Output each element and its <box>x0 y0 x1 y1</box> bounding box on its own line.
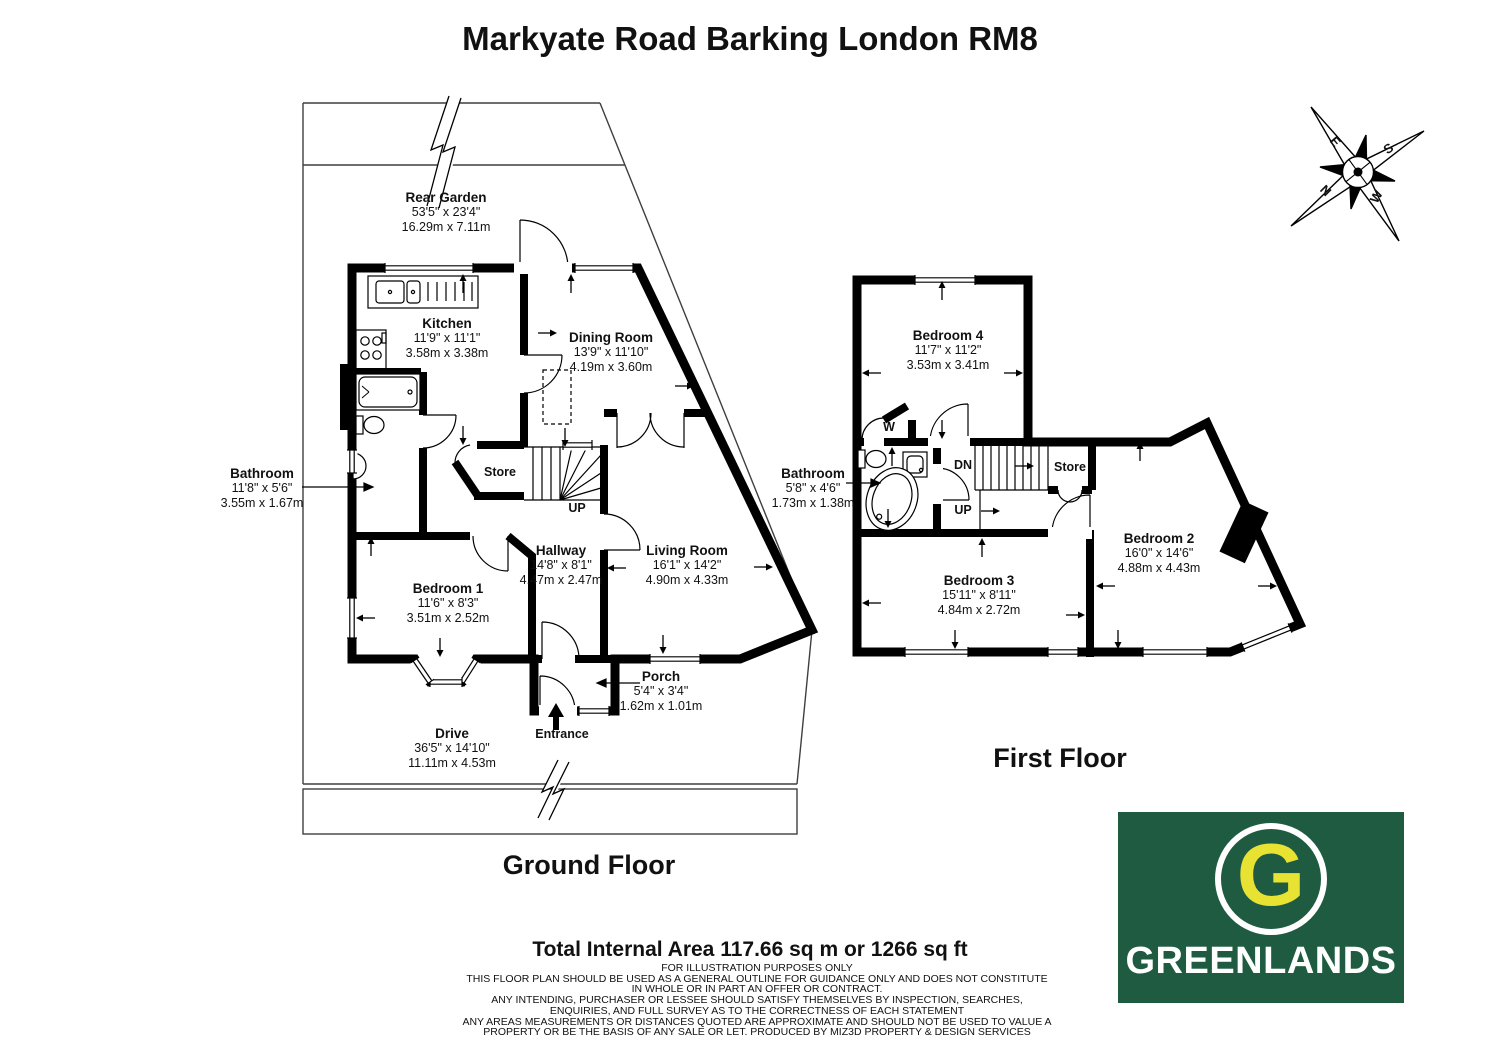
room-label-first-bathroom: Bathroom 5'8" x 4'6" 1.73m x 1.38m <box>772 466 855 511</box>
room-label-dining-room: Dining Room 13'9" x 11'10" 4.19m x 3.60m <box>569 330 653 375</box>
entrance-label: Entrance <box>535 727 589 741</box>
ground-store-label: Store <box>484 465 516 479</box>
room-label-kitchen: Kitchen 11'9" x 11'1" 3.58m x 3.38m <box>406 316 489 361</box>
room-label-living-room: Living Room 16'1" x 14'2" 4.90m x 4.33m <box>646 543 729 588</box>
logo-letter: G <box>1237 831 1305 919</box>
first-store-label: Store <box>1054 460 1086 474</box>
boundary-break-bottom <box>538 760 569 820</box>
floorplan-page: Markyate Road Barking London RM8 Rear Ga… <box>0 0 1500 1060</box>
ground-floor-plan <box>340 220 812 711</box>
greenlands-logo: G GREENLANDS <box>1118 812 1404 1003</box>
room-label-bedroom-2: Bedroom 2 16'0" x 14'6" 4.88m x 4.43m <box>1118 531 1201 576</box>
room-label-ground-bathroom: Bathroom 11'8" x 5'6" 3.55m x 1.67m <box>221 466 304 511</box>
first-up-label: UP <box>954 503 971 517</box>
compass-rose-icon <box>1291 107 1424 241</box>
room-label-rear-garden: Rear Garden 53'5" x 23'4" 16.29m x 7.11m <box>402 190 491 235</box>
first-dn-label: DN <box>954 458 972 472</box>
room-label-drive: Drive 36'5" x 14'10" 11.11m x 4.53m <box>408 726 496 771</box>
ground-floor-title: Ground Floor <box>503 850 675 881</box>
total-area-text: Total Internal Area 117.66 sq m or 1266 … <box>532 938 967 962</box>
disclaimer-text: FOR ILLUSTRATION PURPOSES ONLY THIS FLOO… <box>462 963 1051 1038</box>
room-label-hallway: Hallway 14'8" x 8'1" 4.47m x 2.47m <box>520 543 603 588</box>
logo-brand-name: GREENLANDS <box>1125 940 1396 983</box>
page-title: Markyate Road Barking London RM8 <box>462 20 1038 58</box>
first-floor-title: First Floor <box>993 743 1127 774</box>
ground-up-label: UP <box>568 501 585 515</box>
room-label-bedroom-4: Bedroom 4 11'7" x 11'2" 3.53m x 3.41m <box>907 328 990 373</box>
room-label-porch: Porch 5'4" x 3'4" 1.62m x 1.01m <box>620 669 703 714</box>
room-label-bedroom-3: Bedroom 3 15'11" x 8'11" 4.84m x 2.72m <box>938 573 1021 618</box>
wardrobe-label: W <box>883 420 895 434</box>
room-label-bedroom-1: Bedroom 1 11'6" x 8'3" 3.51m x 2.52m <box>407 581 490 626</box>
logo-circle-icon: G <box>1215 823 1327 935</box>
